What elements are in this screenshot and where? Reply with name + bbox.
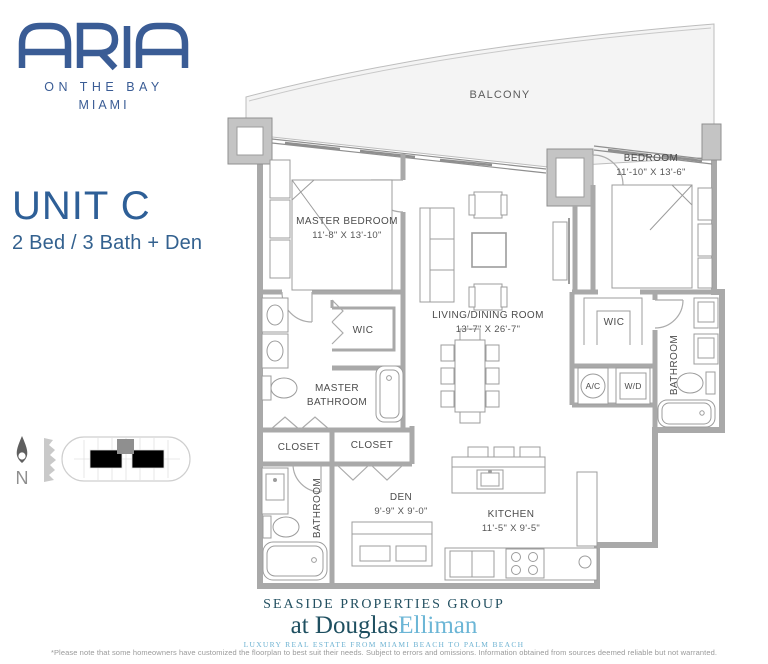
- dims-kitchen: 11'-5" X 9'-5": [482, 523, 540, 534]
- dims-bedroom: 11'-10" X 13'-6": [616, 167, 685, 178]
- tv-console: [553, 218, 569, 284]
- label-wd: W/D: [624, 381, 641, 391]
- dims-master-bedroom: 11'-8" X 13'-10": [312, 230, 381, 241]
- dims-den: 9'-9" X 9'-0": [374, 506, 427, 517]
- broker-logo: at DouglasElliman: [0, 613, 768, 639]
- label-master-bedroom: MASTER BEDROOM: [296, 216, 398, 227]
- label-living: LIVING/DINING ROOM: [432, 310, 544, 321]
- door-bathroom3: [655, 300, 683, 328]
- broker-branding: SEASIDE PROPERTIES GROUP at DouglasEllim…: [0, 597, 768, 649]
- coffee-table: [472, 233, 506, 267]
- label-closet1: CLOSET: [278, 442, 320, 453]
- label-wic-left: WIC: [353, 325, 374, 336]
- label-den: DEN: [390, 492, 412, 503]
- bedroom-bed: [612, 185, 712, 288]
- floorplan-sheet: ON THE BAY MIAMI UNIT C 2 Bed / 3 Bath +…: [0, 0, 768, 664]
- broker-group-name: SEASIDE PROPERTIES GROUP: [0, 597, 768, 613]
- broker-elliman: Elliman: [398, 612, 477, 639]
- bathroom3-fixtures: [658, 298, 718, 427]
- column-center-core: [556, 158, 584, 197]
- label-kitchen: KITCHEN: [488, 509, 535, 520]
- broker-at: at: [291, 612, 315, 639]
- broker-douglas: Douglas: [315, 612, 398, 639]
- kitchen-island: [452, 447, 545, 493]
- living-sofa: [420, 208, 454, 302]
- column-left-core: [237, 127, 263, 155]
- label-bathroom2: BATHROOM: [312, 478, 323, 538]
- dims-living: 13'-7" X 26'-7": [456, 324, 521, 335]
- label-bedroom: BEDROOM: [624, 153, 678, 164]
- label-wic-right: WIC: [604, 317, 625, 328]
- floorplan-drawing: BALCONY: [0, 0, 768, 664]
- label-master-bath-1: MASTER: [315, 383, 359, 394]
- dining-set: [441, 329, 499, 423]
- label-closet2: CLOSET: [351, 440, 393, 451]
- den-sofa: [352, 522, 432, 566]
- label-ac: A/C: [586, 381, 601, 391]
- balcony-label: BALCONY: [470, 89, 531, 101]
- disclaimer-text: *Please note that some homeowners have c…: [0, 648, 768, 657]
- label-bathroom3: BATHROOM: [669, 335, 680, 395]
- label-master-bath-2: BATHROOM: [307, 397, 367, 408]
- column-right: [702, 124, 721, 160]
